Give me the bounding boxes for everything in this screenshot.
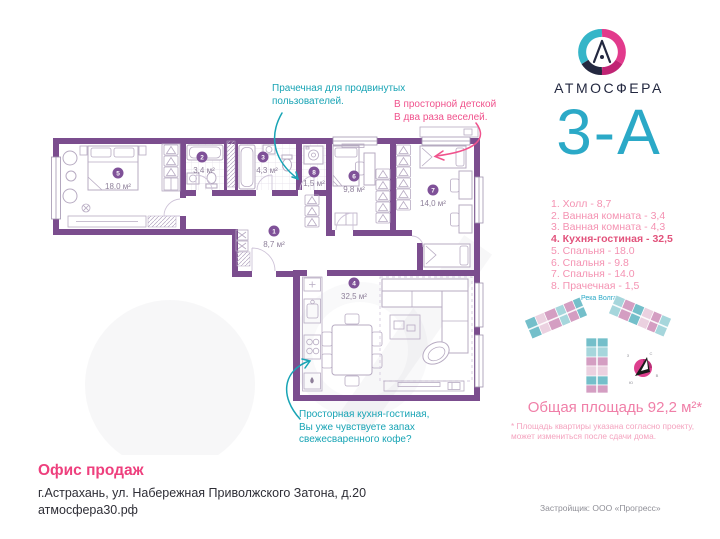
sofa-icon bbox=[382, 279, 468, 291]
bed-icon bbox=[420, 146, 466, 168]
svg-text:18.0 м²: 18.0 м² bbox=[105, 182, 131, 191]
nightstand-icon bbox=[139, 146, 146, 155]
svg-text:32,5 м²: 32,5 м² bbox=[341, 292, 367, 301]
desk-icon bbox=[459, 205, 472, 233]
building-wing-left bbox=[524, 297, 587, 339]
nightstand-icon bbox=[80, 146, 87, 155]
svg-text:6: 6 bbox=[352, 173, 356, 180]
chair-icon bbox=[322, 354, 332, 368]
note-laundry: Прачечная для продвинутых пользователей. bbox=[272, 83, 405, 108]
svg-text:З: З bbox=[627, 353, 630, 358]
svg-text:В: В bbox=[656, 373, 659, 378]
svg-text:3: 3 bbox=[261, 154, 265, 161]
dining-table-icon bbox=[332, 325, 372, 375]
apartment-code: 3-А bbox=[524, 100, 694, 164]
svg-text:Ю: Ю bbox=[629, 380, 633, 385]
plumbing-shaft bbox=[227, 141, 235, 187]
chair-icon bbox=[345, 376, 359, 386]
river-label: Река Волга bbox=[581, 295, 617, 302]
compass-icon: С В Ю З bbox=[627, 351, 659, 385]
note-kids-room: В просторной детской В два раза веселей. bbox=[394, 99, 496, 124]
flyer-page: АТМОСФЕРА 3-А 1. Холл - 8,7 2. Ванная ко… bbox=[0, 0, 720, 539]
toilet-icon bbox=[282, 155, 292, 159]
floor-plan: 5 18.0 м² 2 3,4 м² 3 4,3 м² 8 1,5 м² 6 9… bbox=[30, 85, 510, 455]
total-area: Общая площадь 92,2 м²* bbox=[513, 399, 717, 416]
svg-text:1: 1 bbox=[272, 228, 276, 235]
note-kitchen: Просторная кухня-гостиная, Вы уже чувств… bbox=[299, 409, 429, 447]
developer-label: Застройщик: ООО «Прогресс» bbox=[540, 503, 661, 513]
desk-icon bbox=[364, 153, 375, 185]
building-wing-bottom bbox=[586, 338, 608, 393]
atmosfera-logo-icon bbox=[575, 26, 629, 80]
svg-text:С: С bbox=[650, 351, 653, 356]
entry-doormat bbox=[237, 252, 250, 266]
site-plan: Река Волга bbox=[523, 291, 675, 403]
svg-text:4: 4 bbox=[352, 280, 356, 287]
brand-name: АТМОСФЕРА bbox=[524, 80, 694, 96]
svg-text:7: 7 bbox=[431, 187, 435, 194]
building-wing-right bbox=[608, 295, 671, 337]
svg-text:4,3 м²: 4,3 м² bbox=[256, 166, 278, 175]
chair-icon bbox=[322, 332, 332, 346]
desk-icon bbox=[459, 171, 472, 199]
bed-icon bbox=[424, 244, 470, 267]
balcony bbox=[420, 127, 478, 137]
room-8-laundry bbox=[304, 146, 323, 164]
svg-text:3,4 м²: 3,4 м² bbox=[193, 166, 215, 175]
svg-text:5: 5 bbox=[116, 170, 120, 177]
svg-text:1,5 м²: 1,5 м² bbox=[303, 179, 325, 188]
svg-text:14,0 м²: 14,0 м² bbox=[420, 199, 446, 208]
side-table-icon bbox=[66, 171, 76, 181]
armchair-icon bbox=[63, 189, 77, 203]
svg-text:2: 2 bbox=[200, 154, 204, 161]
sales-office-label: Офис продаж bbox=[38, 462, 144, 480]
chair-icon bbox=[451, 179, 460, 192]
svg-text:8,7 м²: 8,7 м² bbox=[263, 240, 285, 249]
svg-text:9,8 м²: 9,8 м² bbox=[343, 185, 365, 194]
chair-icon bbox=[451, 213, 460, 226]
chair-icon bbox=[372, 332, 382, 346]
svg-text:8: 8 bbox=[312, 169, 316, 176]
room-list: 1. Холл - 8,7 2. Ванная комната - 3,4 3.… bbox=[551, 199, 673, 293]
area-footnote: * Площадь квартиры указана согласно прое… bbox=[511, 421, 716, 442]
website-url: атмосфера30.рф bbox=[38, 503, 138, 517]
armchair-icon bbox=[63, 151, 77, 165]
room-list-item: 1. Холл - 8,7 bbox=[551, 199, 673, 211]
room-list-item: 5. Спальня - 18.0 bbox=[551, 246, 673, 258]
chair-icon bbox=[345, 314, 359, 324]
office-address: г.Астрахань, ул. Набережная Приволжского… bbox=[38, 486, 366, 500]
